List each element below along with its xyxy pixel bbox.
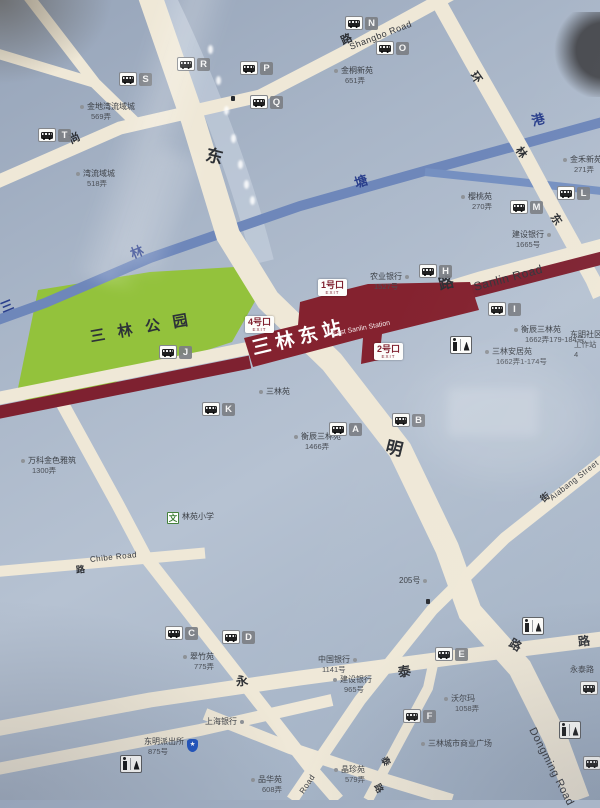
poi-label: 沃尔玛1058弄 <box>444 694 479 714</box>
road-yongtai <box>0 638 600 730</box>
poi-text: 晶珍苑579弄 <box>341 765 365 785</box>
poi-dot <box>405 275 409 279</box>
school-icon: 文 <box>167 512 179 524</box>
poi-label: 三林苑 <box>259 387 290 397</box>
bus-stop-icon-M <box>510 200 528 214</box>
poi-label: 万科金色雅筑1300弄 <box>21 456 76 476</box>
bus-stop-letter: O <box>396 42 409 55</box>
poi-dot <box>334 69 338 73</box>
exit-caption: EXIT <box>248 327 271 332</box>
poi-label: 三林城市商业广场 <box>421 739 492 749</box>
poi-dot <box>183 655 187 659</box>
poi-dot <box>294 435 298 439</box>
bus-icon <box>168 630 180 637</box>
poi-dot <box>334 768 338 772</box>
poi-address: 651弄 <box>341 76 373 86</box>
restroom-icon <box>522 617 544 635</box>
poi-name: 三林安居苑 <box>492 347 547 357</box>
poi-text: 翠竹苑775弄 <box>190 652 214 672</box>
bus-stop-letter: M <box>530 201 543 214</box>
poi-label: 永泰路 <box>570 665 594 675</box>
poi-label: 金地湾流域城569弄 <box>80 102 135 122</box>
poi-dot <box>444 697 448 701</box>
bus-icon <box>395 417 407 424</box>
poi-name: 沃尔玛 <box>451 694 479 704</box>
poi-text: 三林苑 <box>266 387 290 397</box>
man-figure-icon <box>562 727 566 736</box>
glare-speck <box>216 76 221 85</box>
road-name-char: 泰 <box>397 664 412 680</box>
glare-speck <box>250 196 255 205</box>
restroom-icon <box>450 336 472 354</box>
poi-label: 中国银行1141号 <box>318 655 357 675</box>
road-west-vertical <box>62 403 338 800</box>
bus-stop-letter: F <box>423 710 436 723</box>
poi-address: 1141号 <box>318 665 350 675</box>
poi-text: 建设银行1665号 <box>512 230 544 250</box>
metro-exit-2: 2号口EXIT <box>374 343 403 360</box>
poi-name: 建设银行 <box>340 675 372 685</box>
restroom-icon <box>120 755 142 773</box>
poi-address: 518弄 <box>83 179 115 189</box>
poi-name: 东明社区 <box>570 330 600 340</box>
poi-label: 湾流域城518弄 <box>76 169 115 189</box>
bus-stop-icon-Q <box>250 95 268 109</box>
poi-text: 金桐新苑651弄 <box>341 66 373 86</box>
woman-figure-icon <box>573 727 579 736</box>
woman-figure-icon <box>464 342 470 351</box>
poi-label: 三林安居苑1662弄1-174号 <box>485 347 547 367</box>
glare-speck <box>238 160 243 169</box>
poi-name: 东明派出所 <box>144 737 184 747</box>
poi-label: 上海银行 <box>205 717 244 727</box>
road-name-char: 路 <box>76 565 86 575</box>
poi-text: 永泰路 <box>570 665 594 675</box>
man-figure-icon <box>453 342 457 351</box>
poi-name: 金禾新苑 <box>570 155 600 165</box>
poi-name: 中国银行 <box>318 655 350 665</box>
poi-dot <box>76 172 80 176</box>
poi-text: 品华苑608弄 <box>258 775 282 795</box>
bus-stop-letter: K <box>222 403 235 416</box>
poi-name: 农业银行 <box>370 272 402 282</box>
bus-stop-letter: E <box>455 648 468 661</box>
poi-label: 建设银行1665号 <box>512 230 551 250</box>
poi-text: 中国银行1141号 <box>318 655 350 675</box>
man-figure-icon <box>123 761 127 770</box>
bus-stop-letter: C <box>185 627 198 640</box>
bus-icon <box>560 190 572 197</box>
poi-text: 万科金色雅筑1300弄 <box>28 456 76 476</box>
bus-stop-icon <box>580 681 598 695</box>
poi-label: 晶珍苑579弄 <box>334 765 365 785</box>
bus-icon <box>243 65 255 72</box>
small-map-marker <box>231 96 235 101</box>
bus-stop-icon-B <box>392 413 410 427</box>
poi-label: 金禾新苑271弄 <box>563 155 600 175</box>
poi-dot <box>251 778 255 782</box>
bus-stop-letter: Q <box>270 96 283 109</box>
poi-school: 文林苑小学 <box>167 512 214 524</box>
poi-text: 金禾新苑271弄 <box>570 155 600 175</box>
poi-name: 金地湾流域城 <box>87 102 135 112</box>
poi-name: 晶珍苑 <box>341 765 365 775</box>
poi-address: 608弄 <box>258 785 282 795</box>
poi-text: 湾流域城518弄 <box>83 169 115 189</box>
road-name-char: 路 <box>577 635 590 649</box>
bus-stop-icon-C <box>165 626 183 640</box>
poi-text: 205号 <box>399 576 420 586</box>
poi-address: 1527号 <box>370 282 402 292</box>
bus-icon <box>438 651 450 658</box>
poi-name: 金桐新苑 <box>341 66 373 76</box>
bus-icon <box>162 349 174 356</box>
bus-stop-icon-D <box>222 630 240 644</box>
poi-text: 樱桃苑270弄 <box>468 192 492 212</box>
bus-icon <box>180 61 192 68</box>
bus-icon <box>348 20 360 27</box>
bus-icon <box>205 406 217 413</box>
poi-address: 1058弄 <box>451 704 479 714</box>
poi-label: 农业银行1527号 <box>370 272 409 292</box>
bus-stop-icon-T <box>38 128 56 142</box>
poi-text: 东明派出所875号 <box>144 737 184 757</box>
exit-caption: EXIT <box>321 290 344 295</box>
bus-stop-icon-R <box>177 57 195 71</box>
poi-name: 翠竹苑 <box>190 652 214 662</box>
bus-stop-icon <box>583 756 600 770</box>
poi-address: 579弄 <box>341 775 365 785</box>
bus-stop-icon-F <box>403 709 421 723</box>
bus-icon <box>225 634 237 641</box>
bus-stop-letter: I <box>508 303 521 316</box>
exit-caption: EXIT <box>377 354 400 359</box>
poi-name: 樱桃苑 <box>468 192 492 202</box>
road-name-char: 永 <box>235 674 249 688</box>
poi-label: 东明社区工作站4 <box>570 330 600 360</box>
poi-text: 三林城市商业广场 <box>428 739 492 749</box>
bus-icon <box>122 76 134 83</box>
woman-figure-icon <box>536 623 542 632</box>
woman-figure-icon <box>134 761 140 770</box>
bus-stop-letter: B <box>412 414 425 427</box>
poi-name: 湾流域城 <box>83 169 115 179</box>
glare-speck <box>231 134 236 143</box>
poi-text: 三林安居苑1662弄1-174号 <box>492 347 547 367</box>
bus-stop-letter: A <box>349 423 362 436</box>
poi-address: 1466弄 <box>301 442 341 452</box>
poi-dot <box>461 195 465 199</box>
divider <box>532 620 533 632</box>
poi-label: 品华苑608弄 <box>251 775 282 795</box>
poi-address: 1300弄 <box>28 466 76 476</box>
restroom-icon <box>559 721 581 739</box>
bus-icon <box>41 132 53 139</box>
poi-dot <box>563 158 567 162</box>
poi-address: 工作站 <box>570 340 600 350</box>
police-icon: ★ <box>187 739 198 752</box>
poi-text: 沃尔玛1058弄 <box>451 694 479 714</box>
divider <box>460 339 461 351</box>
poi-dot <box>80 105 84 109</box>
poi-text: 东明社区工作站4 <box>570 330 600 360</box>
metro-exit-1: 1号口EXIT <box>318 279 347 296</box>
station-area-map: 三林东站 East Sanlin Station 三林公园 东明路Dongmin… <box>0 0 600 800</box>
glare-speck <box>224 106 229 115</box>
bus-icon <box>253 99 265 106</box>
poi-dot <box>259 390 263 394</box>
bus-stop-icon-S <box>119 72 137 86</box>
poi-name: 三林城市商业广场 <box>428 739 492 749</box>
poi-name: 205号 <box>399 576 420 586</box>
bus-stop-icon-A <box>329 422 347 436</box>
bus-stop-letter: L <box>577 187 590 200</box>
bus-icon <box>422 268 434 275</box>
poi-label: 建设银行965号 <box>333 675 372 695</box>
poi-address: 271弄 <box>570 165 600 175</box>
poi-name: 三林苑 <box>266 387 290 397</box>
poi-police: 东明派出所875号★ <box>144 737 198 757</box>
bus-stop-letter: N <box>365 17 378 30</box>
bus-stop-icon-N <box>345 16 363 30</box>
bus-stop-icon-K <box>202 402 220 416</box>
poi-text: 林苑小学 <box>182 512 214 522</box>
man-figure-icon <box>525 623 529 632</box>
poi-address: 4 <box>570 350 600 360</box>
poi-label: 翠竹苑775弄 <box>183 652 214 672</box>
bus-icon <box>379 45 391 52</box>
bus-icon <box>513 204 525 211</box>
bus-stop-letter: J <box>179 346 192 359</box>
poi-dot <box>353 658 357 662</box>
poi-label: 金桐新苑651弄 <box>334 66 373 86</box>
exit-label: 4号口 <box>248 317 271 327</box>
bus-stop-letter: H <box>439 265 452 278</box>
bus-stop-letter: S <box>139 73 152 86</box>
poi-address: 270弄 <box>468 202 492 212</box>
glare-speck <box>208 45 213 54</box>
poi-text: 金地湾流域城569弄 <box>87 102 135 122</box>
bus-icon <box>583 685 595 692</box>
bus-stop-icon-J <box>159 345 177 359</box>
bus-icon <box>586 760 598 767</box>
bus-stop-icon-H <box>419 264 437 278</box>
poi-name: 上海银行 <box>205 717 237 727</box>
poi-dot <box>547 233 551 237</box>
poi-address: 875号 <box>144 747 184 757</box>
poi-label: 205号 <box>399 576 427 586</box>
metro-exit-3: 4号口EXIT <box>245 316 274 333</box>
bus-stop-icon-O <box>376 41 394 55</box>
poi-address: 569弄 <box>87 112 135 122</box>
bus-icon <box>332 426 344 433</box>
poi-text: 农业银行1527号 <box>370 272 402 292</box>
poi-dot <box>423 579 427 583</box>
poi-address: 965号 <box>340 685 372 695</box>
poi-name: 建设银行 <box>512 230 544 240</box>
bus-stop-letter: P <box>260 62 273 75</box>
poi-name: 林苑小学 <box>182 512 214 522</box>
poi-address: 1662弄1-174号 <box>492 357 547 367</box>
poi-text: 上海银行 <box>205 717 237 727</box>
bus-stop-letter: D <box>242 631 255 644</box>
exit-label: 1号口 <box>321 280 344 290</box>
poi-address: 1665号 <box>512 240 544 250</box>
bus-stop-icon-P <box>240 61 258 75</box>
bus-stop-letter: T <box>58 129 71 142</box>
poi-dot <box>240 720 244 724</box>
poi-dot <box>21 459 25 463</box>
poi-dot <box>514 328 518 332</box>
divider <box>130 758 131 770</box>
poi-address: 775弄 <box>190 662 214 672</box>
poi-dot <box>421 742 425 746</box>
poi-name: 万科金色雅筑 <box>28 456 76 466</box>
bus-stop-icon-L <box>557 186 575 200</box>
exit-label: 2号口 <box>377 344 400 354</box>
poi-label: 樱桃苑270弄 <box>461 192 492 212</box>
poi-dot <box>333 678 337 682</box>
poi-text: 建设银行965号 <box>340 675 372 695</box>
bus-stop-icon-E <box>435 647 453 661</box>
bus-stop-letter: R <box>197 58 210 71</box>
poi-name: 永泰路 <box>570 665 594 675</box>
glare-speck <box>244 180 249 189</box>
bus-icon <box>406 713 418 720</box>
bus-icon <box>491 306 503 313</box>
divider <box>569 724 570 736</box>
small-map-marker <box>426 599 430 604</box>
poi-name: 品华苑 <box>258 775 282 785</box>
poi-dot <box>485 350 489 354</box>
bus-stop-icon-I <box>488 302 506 316</box>
